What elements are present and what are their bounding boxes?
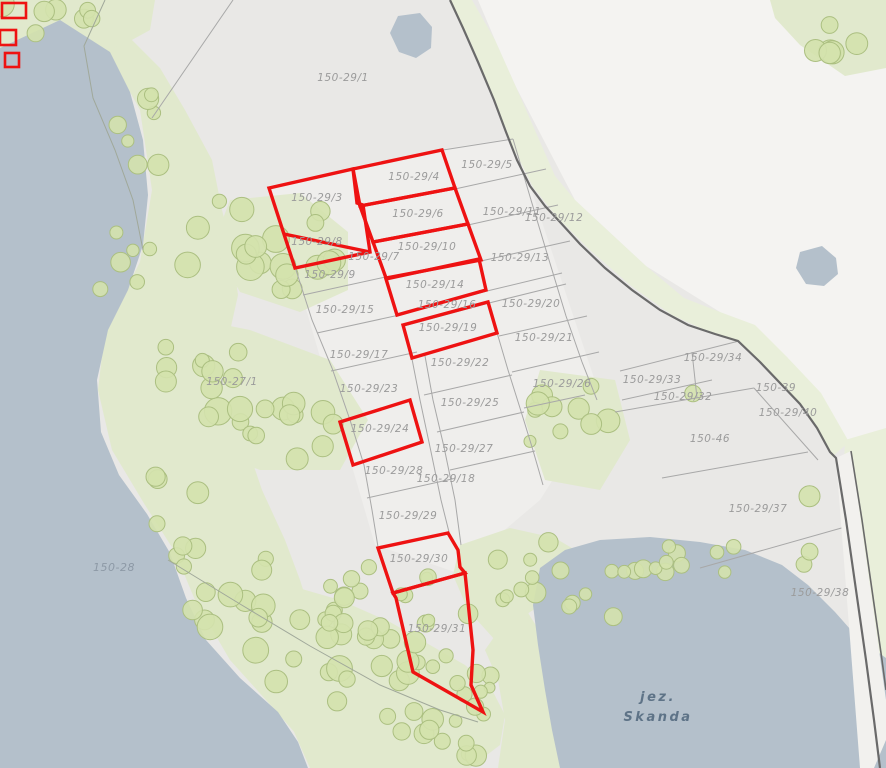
tree-icon — [122, 135, 134, 147]
parcel-number-label: 150-28 — [93, 561, 135, 574]
parcel-number-label: 150-29/9 — [304, 269, 355, 281]
tree-icon — [143, 242, 157, 256]
tree-icon — [174, 537, 192, 555]
tree-icon — [371, 655, 392, 676]
parcel-number-label: 150-29/28 — [365, 465, 424, 477]
parcel-number-label: 150-29/22 — [431, 357, 490, 369]
tree-icon — [279, 405, 299, 425]
tree-icon — [145, 88, 159, 102]
tree-icon — [358, 621, 378, 641]
tree-icon — [801, 543, 818, 560]
tree-icon — [130, 275, 145, 290]
tree-icon — [393, 723, 410, 740]
tree-icon — [109, 116, 126, 133]
tree-icon — [426, 660, 440, 674]
tree-icon — [230, 197, 254, 221]
tree-icon — [659, 555, 673, 569]
tree-icon — [128, 155, 147, 174]
tree-icon — [579, 588, 591, 600]
tree-icon — [324, 579, 338, 593]
tree-icon — [187, 482, 209, 504]
tree-icon — [183, 600, 203, 620]
parcel-number-label: 150-29/30 — [390, 553, 449, 565]
tree-icon — [227, 396, 252, 421]
parcel-number-label: 150-29/8 — [291, 236, 342, 248]
tree-icon — [361, 560, 376, 575]
tree-icon — [197, 614, 223, 640]
tree-icon — [380, 708, 396, 724]
tree-icon — [821, 17, 838, 34]
tree-icon — [726, 540, 741, 555]
tree-icon — [799, 486, 820, 507]
parcel-number-label: 150-29/37 — [729, 503, 788, 515]
tree-icon — [524, 553, 537, 566]
parcel-number-label: 150-29/21 — [515, 332, 574, 344]
map-viewport[interactable]: 150-29/1150-29/4150-29/5150-29/3150-29/6… — [0, 0, 886, 768]
tree-icon — [405, 703, 423, 721]
parcel-number-label: 150-29/3 — [291, 192, 342, 204]
parcel-number-label: 150-29/34 — [684, 352, 743, 364]
tree-icon — [439, 649, 453, 663]
tree-icon — [252, 560, 272, 580]
tree-icon — [662, 540, 675, 553]
tree-icon — [334, 588, 354, 608]
tree-icon — [514, 582, 529, 597]
tree-icon — [149, 516, 165, 532]
tree-icon — [343, 571, 359, 587]
tree-icon — [111, 252, 131, 272]
tree-icon — [819, 42, 840, 63]
parcel-number-label: 150-29/24 — [351, 423, 410, 435]
parcel-number-label: 150-29/33 — [623, 374, 682, 386]
parcel-number-label: 150-29/17 — [330, 349, 389, 361]
tree-icon — [84, 10, 100, 26]
parcel-number-label: 150-29/13 — [491, 252, 550, 264]
tree-icon — [229, 343, 247, 361]
parcel-number-label: 150-29/14 — [406, 279, 465, 291]
parcel-number-label: 150-27/1 — [206, 376, 257, 388]
tree-icon — [158, 339, 174, 355]
parcel-number-label: 150-29/38 — [791, 587, 850, 599]
tree-icon — [286, 448, 308, 470]
parcel-number-label: 150-29/31 — [408, 623, 467, 635]
tree-icon — [146, 467, 165, 486]
parcel-number-label: 150-29/16 — [418, 299, 477, 311]
tree-icon — [312, 436, 333, 457]
tree-icon — [674, 557, 690, 573]
parcel-number-label: 150-29/40 — [759, 407, 818, 419]
tree-icon — [290, 610, 310, 630]
parcel-number-label: 150-29/26 — [533, 378, 592, 390]
parcel-number-label: 150-46 — [690, 433, 730, 445]
tree-icon — [256, 400, 274, 418]
tree-icon — [618, 565, 631, 578]
tree-icon — [186, 216, 209, 239]
tree-icon — [248, 427, 265, 444]
tree-icon — [93, 282, 108, 297]
parcel-number-label: 150-29/18 — [417, 473, 476, 485]
parcel-number-label: 150-29/19 — [419, 322, 478, 334]
tree-icon — [525, 571, 539, 585]
parcel-number-label: 150-29/20 — [502, 298, 561, 310]
tree-icon — [265, 670, 288, 693]
tree-icon — [307, 215, 324, 232]
tree-icon — [553, 424, 568, 439]
parcel-number-label: 150-29/7 — [348, 251, 399, 263]
tree-icon — [199, 407, 219, 427]
tree-icon — [539, 533, 558, 552]
parcel-number-label: 150-39 — [756, 382, 796, 394]
tree-icon — [110, 226, 123, 239]
tree-icon — [339, 671, 355, 687]
lake-name-label: Skanda — [623, 710, 692, 725]
tree-icon — [245, 236, 267, 258]
tree-icon — [328, 692, 347, 711]
parcel-number-label: 150-29/12 — [525, 212, 584, 224]
tree-icon — [155, 371, 176, 392]
tree-icon — [552, 562, 569, 579]
tree-icon — [710, 545, 724, 559]
tree-icon — [458, 735, 474, 751]
tree-icon — [605, 564, 619, 578]
parcel-number-label: 150-29/5 — [461, 159, 512, 171]
tree-icon — [148, 154, 169, 175]
tree-icon — [500, 590, 513, 603]
tree-icon — [604, 608, 622, 626]
parcel-number-label: 150-29/27 — [435, 443, 494, 455]
parcel-number-label: 150-29/23 — [340, 383, 399, 395]
tree-icon — [196, 583, 215, 602]
tree-icon — [27, 25, 44, 42]
tree-icon — [243, 637, 269, 663]
parcel-number-label: 150-29/29 — [379, 510, 438, 522]
parcel-number-label: 150-29/32 — [654, 391, 713, 403]
tree-icon — [488, 550, 507, 569]
tree-icon — [562, 599, 577, 614]
parcel-number-label: 150-29/1 — [317, 72, 368, 84]
map-canvas[interactable]: 150-29/1150-29/4150-29/5150-29/3150-29/6… — [0, 0, 886, 768]
parcel-number-label: 150-29/6 — [392, 208, 443, 220]
parcel-number-label: 150-29/10 — [398, 241, 457, 253]
tree-icon — [175, 252, 201, 278]
parcel-number-label: 150-29/15 — [316, 304, 375, 316]
tree-icon — [212, 194, 226, 208]
tree-icon — [34, 1, 54, 21]
tree-icon — [321, 615, 338, 632]
tree-icon — [450, 676, 465, 691]
parcel-number-label: 150-29/25 — [441, 397, 500, 409]
tree-icon — [286, 651, 302, 667]
tree-icon — [420, 720, 439, 739]
lake-name-label: jez. — [638, 690, 676, 705]
tree-icon — [581, 414, 602, 435]
parcel-number-label: 150-29/4 — [388, 171, 439, 183]
tree-icon — [127, 244, 139, 256]
tree-icon — [846, 33, 868, 55]
tree-icon — [719, 566, 731, 578]
